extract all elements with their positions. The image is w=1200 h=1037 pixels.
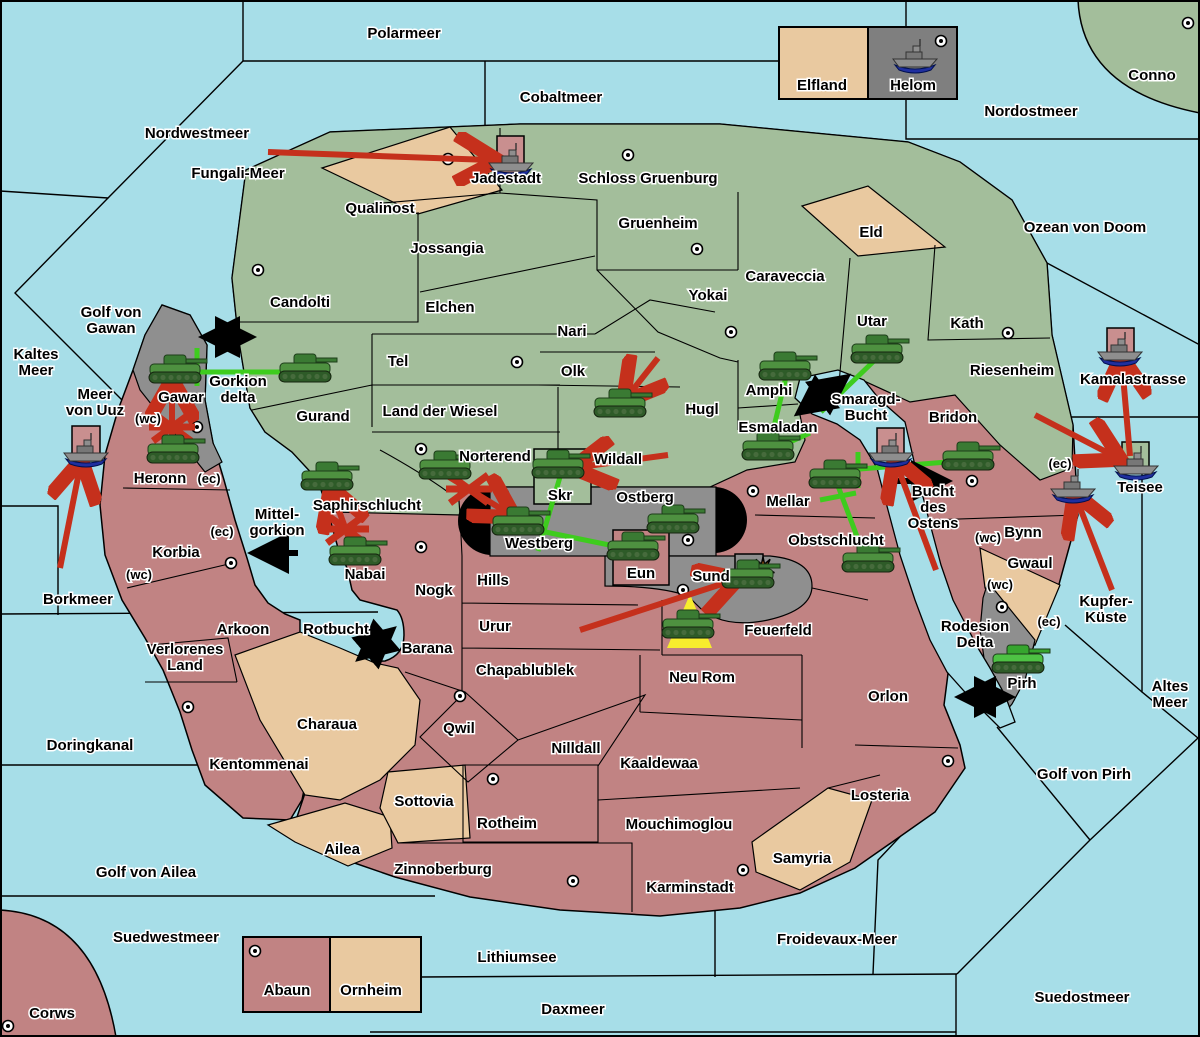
supply-center-icon	[3, 1021, 14, 1032]
sea-label-kaltes-meer: KaltesMeer	[13, 346, 58, 379]
region-label-feuerfeld: Feuerfeld	[744, 622, 812, 639]
region-label-ostberg: Ostberg	[616, 489, 674, 506]
region-label-ornheim: Ornheim	[340, 982, 402, 999]
supply-center-icon	[748, 486, 759, 497]
region-label-eun: Eun	[627, 565, 655, 582]
region-label-nabai: Nabai	[345, 566, 386, 583]
sea-label-golf-von-gawan: Golf vonGawan	[81, 304, 142, 337]
region-label-jossangia: Jossangia	[410, 240, 484, 257]
coast-label-wc: (wc)	[126, 567, 152, 582]
region-label-land-der-wiesel: Land der Wiesel	[383, 403, 498, 420]
region-label-qwil: Qwil	[443, 720, 475, 737]
region-label-wildall: Wildall	[594, 451, 642, 468]
supply-center-icon	[226, 558, 237, 569]
sea-label-cobaltmeer: Cobaltmeer	[520, 89, 603, 106]
supply-center-icon	[183, 702, 194, 713]
region-label-karminstadt: Karminstadt	[646, 879, 734, 896]
region-label-gawar: Gawar	[158, 389, 204, 406]
sea-label-teisee: Teisee	[1117, 479, 1163, 496]
region-label-chapablublek: Chapablublek	[476, 662, 575, 679]
region-label-elchen: Elchen	[425, 299, 474, 316]
sea-label-fungali-meer: Fungali-Meer	[191, 165, 285, 182]
supply-center-icon	[455, 691, 466, 702]
region-label-tel: Tel	[388, 353, 409, 370]
region-label-caraveccia: Caraveccia	[745, 268, 825, 285]
region-label-bridon: Bridon	[929, 409, 977, 426]
region-label-jadestadt: Jadestadt	[471, 170, 541, 187]
supply-center-icon	[683, 535, 694, 546]
supply-center-icon	[416, 542, 427, 553]
coast-label-wc: (wc)	[135, 411, 161, 426]
region-label-utar: Utar	[857, 313, 887, 330]
supply-center-icon	[250, 946, 261, 957]
coast-label-wc: (wc)	[987, 577, 1013, 592]
region-label-kentommenai: Kentommenai	[209, 756, 308, 773]
supply-center-icon	[568, 876, 579, 887]
supply-center-icon	[623, 150, 634, 161]
sea-label-mittel-gorkion: Mittel-gorkion	[250, 506, 305, 539]
region-label-charaua: Charaua	[297, 716, 358, 733]
region-label-gruenheim: Gruenheim	[618, 215, 697, 232]
supply-center-icon	[738, 865, 749, 876]
region-label-saphirschlucht: Saphirschlucht	[313, 497, 421, 514]
supply-center-icon	[498, 489, 509, 500]
region-label-hills: Hills	[477, 572, 509, 589]
region-label-yokai: Yokai	[689, 287, 728, 304]
supply-center-icon	[416, 444, 427, 455]
region-label-amphi: Amphi	[746, 382, 793, 399]
sea-label-golf-von-ailea: Golf von Ailea	[96, 864, 197, 881]
region-label-norterend: Norterend	[459, 448, 531, 465]
region-label-kath: Kath	[950, 315, 983, 332]
region-label-mouchimoglou: Mouchimoglou	[626, 816, 733, 833]
region-label-gwaul: Gwaul	[1007, 555, 1052, 572]
region-label-nogk: Nogk	[415, 582, 453, 599]
region-label-mellar: Mellar	[766, 493, 810, 510]
region-label-kaaldewaa: Kaaldewaa	[620, 755, 698, 772]
region-label-barana: Barana	[402, 640, 454, 657]
supply-center-icon	[936, 36, 947, 47]
region-label-neu-rom: Neu Rom	[669, 669, 735, 686]
sea-label-polarmeer: Polarmeer	[367, 25, 441, 42]
supply-center-icon	[253, 265, 264, 276]
region-label-eld: Eld	[859, 224, 882, 241]
region-label-helom: Helom	[890, 77, 936, 94]
sea-label-nordostmeer: Nordostmeer	[984, 103, 1078, 120]
sea-label-froidevaux-meer: Froidevaux-Meer	[777, 931, 897, 948]
supply-center-icon	[726, 327, 737, 338]
sea-label-borkmeer: Borkmeer	[43, 591, 113, 608]
sea-label-ozean-von-doom: Ozean von Doom	[1024, 219, 1147, 236]
sea-label-lithiumsee: Lithiumsee	[477, 949, 556, 966]
supply-center-icon	[967, 476, 978, 487]
region-label-rotheim: Rotheim	[477, 815, 537, 832]
region-label-corws: Corws	[29, 1005, 75, 1022]
region-label-riesenheim: Riesenheim	[970, 362, 1054, 379]
region-label-elfland: Elfland	[797, 77, 847, 94]
war-map: PolarmeerCobaltmeerNordwestmeerFungali-M…	[0, 0, 1200, 1037]
region-label-nari: Nari	[557, 323, 586, 340]
region-label-hugl: Hugl	[685, 401, 718, 418]
region-label-korbia: Korbia	[152, 544, 200, 561]
region-label-arkoon: Arkoon	[217, 621, 270, 638]
sea-label-golf-von-pirh: Golf von Pirh	[1037, 766, 1131, 783]
coast-label-ec: (ec)	[1048, 456, 1071, 471]
region-label-skr: Skr	[548, 487, 572, 504]
supply-center-icon	[1183, 18, 1194, 29]
region-label-esmaladan: Esmaladan	[738, 419, 817, 436]
region-label-orlon: Orlon	[868, 688, 908, 705]
legend-abaun-ornheim	[243, 937, 421, 1012]
region-label-conno: Conno	[1128, 67, 1175, 84]
sea-label-nordwestmeer: Nordwestmeer	[145, 125, 249, 142]
region-label-pirh: Pirh	[1007, 675, 1036, 692]
sea-label-kamalastrasse: Kamalastrasse	[1080, 371, 1186, 388]
supply-center-icon	[997, 602, 1008, 613]
region-label-obstschlucht: Obstschlucht	[788, 532, 884, 549]
region-label-abaun: Abaun	[264, 982, 311, 999]
region-label-samyria: Samyria	[773, 850, 832, 867]
supply-center-icon	[1003, 328, 1014, 339]
region-label-heronn: Heronn	[134, 470, 187, 487]
supply-center-icon	[943, 756, 954, 767]
region-label-zinnoberburg: Zinnoberburg	[394, 861, 492, 878]
region-label-urur: Urur	[479, 618, 511, 635]
region-label-nilldall: Nilldall	[551, 740, 600, 757]
region-label-ailea: Ailea	[324, 841, 361, 858]
supply-center-icon	[488, 774, 499, 785]
sea-label-kupfer-k-ste: Kupfer-Küste	[1079, 593, 1132, 626]
region-label-olk: Olk	[561, 363, 586, 380]
legend-ornheim[interactable]	[330, 937, 421, 1012]
sea-label-daxmeer: Daxmeer	[541, 1001, 605, 1018]
coast-label-ec: (ec)	[197, 471, 220, 486]
map-canvas: PolarmeerCobaltmeerNordwestmeerFungali-M…	[0, 0, 1200, 1037]
region-label-sund: Sund	[692, 568, 730, 585]
sea-label-suedwestmeer: Suedwestmeer	[113, 929, 219, 946]
region-label-bynn: Bynn	[1004, 524, 1042, 541]
region-label-gurand: Gurand	[296, 408, 349, 425]
region-label-westberg: Westberg	[505, 535, 573, 552]
coast-label-ec: (ec)	[1037, 614, 1060, 629]
sea-label-suedostmeer: Suedostmeer	[1034, 989, 1129, 1006]
region-label-schloss-gruenburg: Schloss Gruenburg	[578, 170, 717, 187]
sea-label-doringkanal: Doringkanal	[47, 737, 134, 754]
supply-center-icon	[692, 244, 703, 255]
sea-label-altes-meer: AltesMeer	[1152, 678, 1189, 711]
region-label-losteria: Losteria	[851, 787, 910, 804]
coast-label-ec: (ec)	[210, 524, 233, 539]
region-label-qualinost: Qualinost	[345, 200, 414, 217]
coast-label-wc: (wc)	[975, 530, 1001, 545]
region-label-sottovia: Sottovia	[394, 793, 454, 810]
sea-label-rotbucht: Rotbucht	[303, 621, 369, 638]
region-label-candolti: Candolti	[270, 294, 330, 311]
supply-center-icon	[512, 357, 523, 368]
